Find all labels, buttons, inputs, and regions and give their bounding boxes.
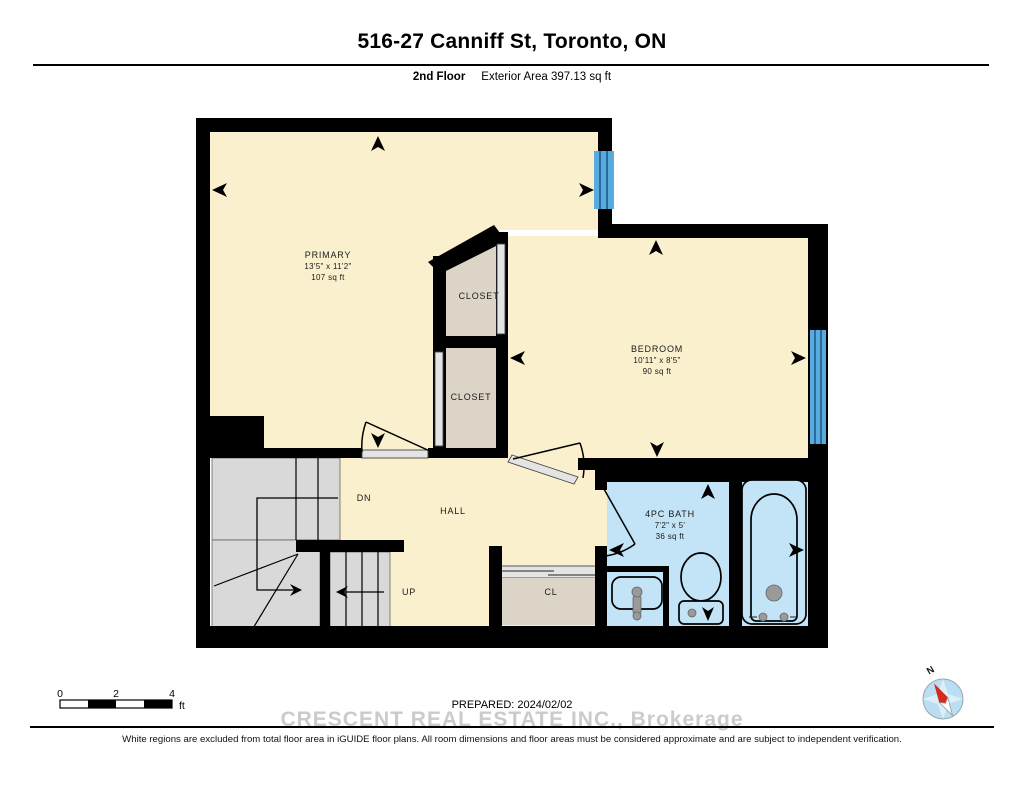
primary-window bbox=[594, 151, 614, 209]
exterior-area-label: Exterior Area 397.13 sq ft bbox=[481, 71, 611, 83]
bedroom-area: 90 sq ft bbox=[643, 367, 672, 376]
floorplan-page: { "header": { "title": "516-27 Canniff S… bbox=[0, 0, 1024, 791]
floor-label: 2nd Floor bbox=[413, 71, 465, 83]
brokerage-watermark: CRESCENT REAL ESTATE INC., Brokerage bbox=[0, 708, 1024, 732]
compass-north-label: N bbox=[925, 664, 937, 677]
bath-dims: 7'2" x 5' bbox=[655, 521, 686, 530]
cl-sliding-door bbox=[500, 566, 600, 578]
bedroom-window bbox=[810, 330, 826, 444]
footer-divider bbox=[30, 726, 994, 728]
primary-room-area: 107 sq ft bbox=[311, 273, 345, 282]
room-fills bbox=[210, 132, 814, 632]
header-divider bbox=[33, 64, 989, 66]
floor-subtitle: 2nd FloorExterior Area 397.13 sq ft bbox=[0, 71, 1024, 83]
primary-room-dims: 13'5" x 11'2" bbox=[304, 262, 351, 271]
bedroom-dims: 10'11" x 8'5" bbox=[633, 356, 680, 365]
page-title: 516-27 Canniff St, Toronto, ON bbox=[0, 30, 1024, 54]
stairs-winder-floor bbox=[212, 540, 320, 632]
primary-room-label: PRIMARY bbox=[305, 250, 351, 260]
disclaimer-text: White regions are excluded from total fl… bbox=[0, 734, 1024, 745]
stairs-up-label: UP bbox=[402, 587, 416, 597]
cl-closet-label: CL bbox=[544, 587, 557, 597]
closet-lower-label: CLOSET bbox=[451, 392, 492, 402]
hall-label: HALL bbox=[440, 506, 466, 516]
floorplan-drawing: PRIMARY 13'5" x 11'2" 107 sq ft CLOSET C… bbox=[186, 108, 842, 658]
bath-area: 36 sq ft bbox=[656, 532, 685, 541]
closet-upper-label: CLOSET bbox=[459, 291, 500, 301]
bedroom-label: BEDROOM bbox=[631, 344, 683, 354]
bath-label: 4PC BATH bbox=[645, 509, 695, 519]
stairs-down-label: DN bbox=[357, 493, 372, 503]
cl-closet-floor bbox=[500, 578, 600, 625]
toilet-fixture bbox=[679, 553, 723, 624]
stairs-landing-floor bbox=[212, 458, 340, 540]
